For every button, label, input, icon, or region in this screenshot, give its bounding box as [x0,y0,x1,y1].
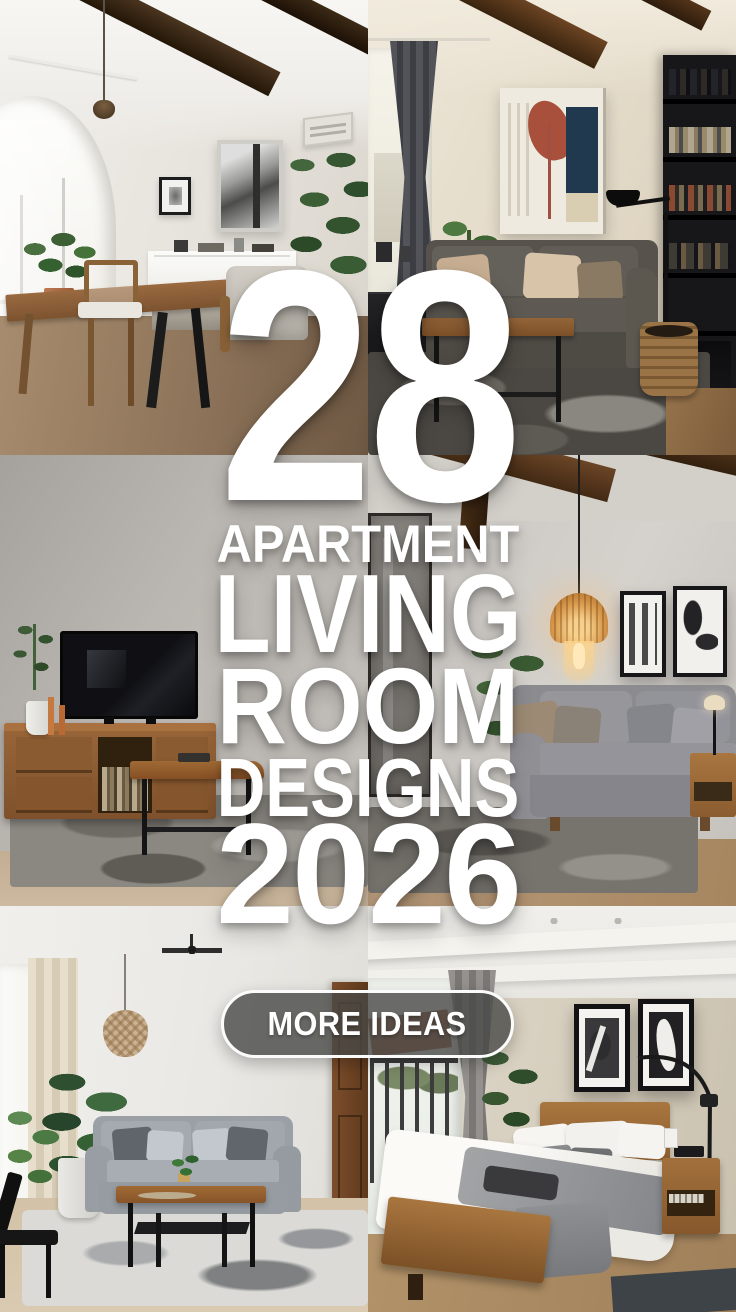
photo-grey-sofa-plants [0,906,368,1312]
title-year: 2026 [7,803,728,946]
book-row [669,69,731,95]
photo-bedroom [368,906,736,1312]
more-ideas-label: MORE IDEAS [268,1005,467,1043]
art-red-line [548,123,551,219]
pillow [617,1122,667,1159]
table-lamp-shade [704,695,725,710]
throw-pillow [225,1126,268,1164]
nightstand [662,1158,720,1234]
art-sand-patch [566,193,598,222]
wall-vent [303,112,353,147]
book-row [669,243,731,269]
curtain-rod [368,38,490,41]
tray [138,1192,196,1199]
pin-collage: 28 APARTMENT LIVING ROOM DESIGNS 2026 MO… [0,0,736,1312]
book-row [669,185,731,211]
bed-leg [408,1274,423,1300]
title-count: 28 [59,221,677,551]
pendant-light [93,100,115,119]
pendant-cord [103,0,105,102]
table-lamp-stem [713,707,716,755]
more-ideas-button[interactable]: MORE IDEAS [221,990,514,1058]
book-row [669,127,731,153]
clock [674,1146,704,1157]
black-chair [0,1172,72,1298]
framed-art [574,1004,630,1092]
table-plant [166,1152,206,1188]
art-navy-block [566,107,598,195]
wall-art-small [159,177,191,215]
art-folds [508,103,529,217]
pendant-cord [124,954,126,1012]
coffee-table-legs [120,1203,264,1267]
wicker-pendant [103,1010,148,1057]
light-switch [664,1128,678,1148]
ceiling-fan [162,946,222,954]
